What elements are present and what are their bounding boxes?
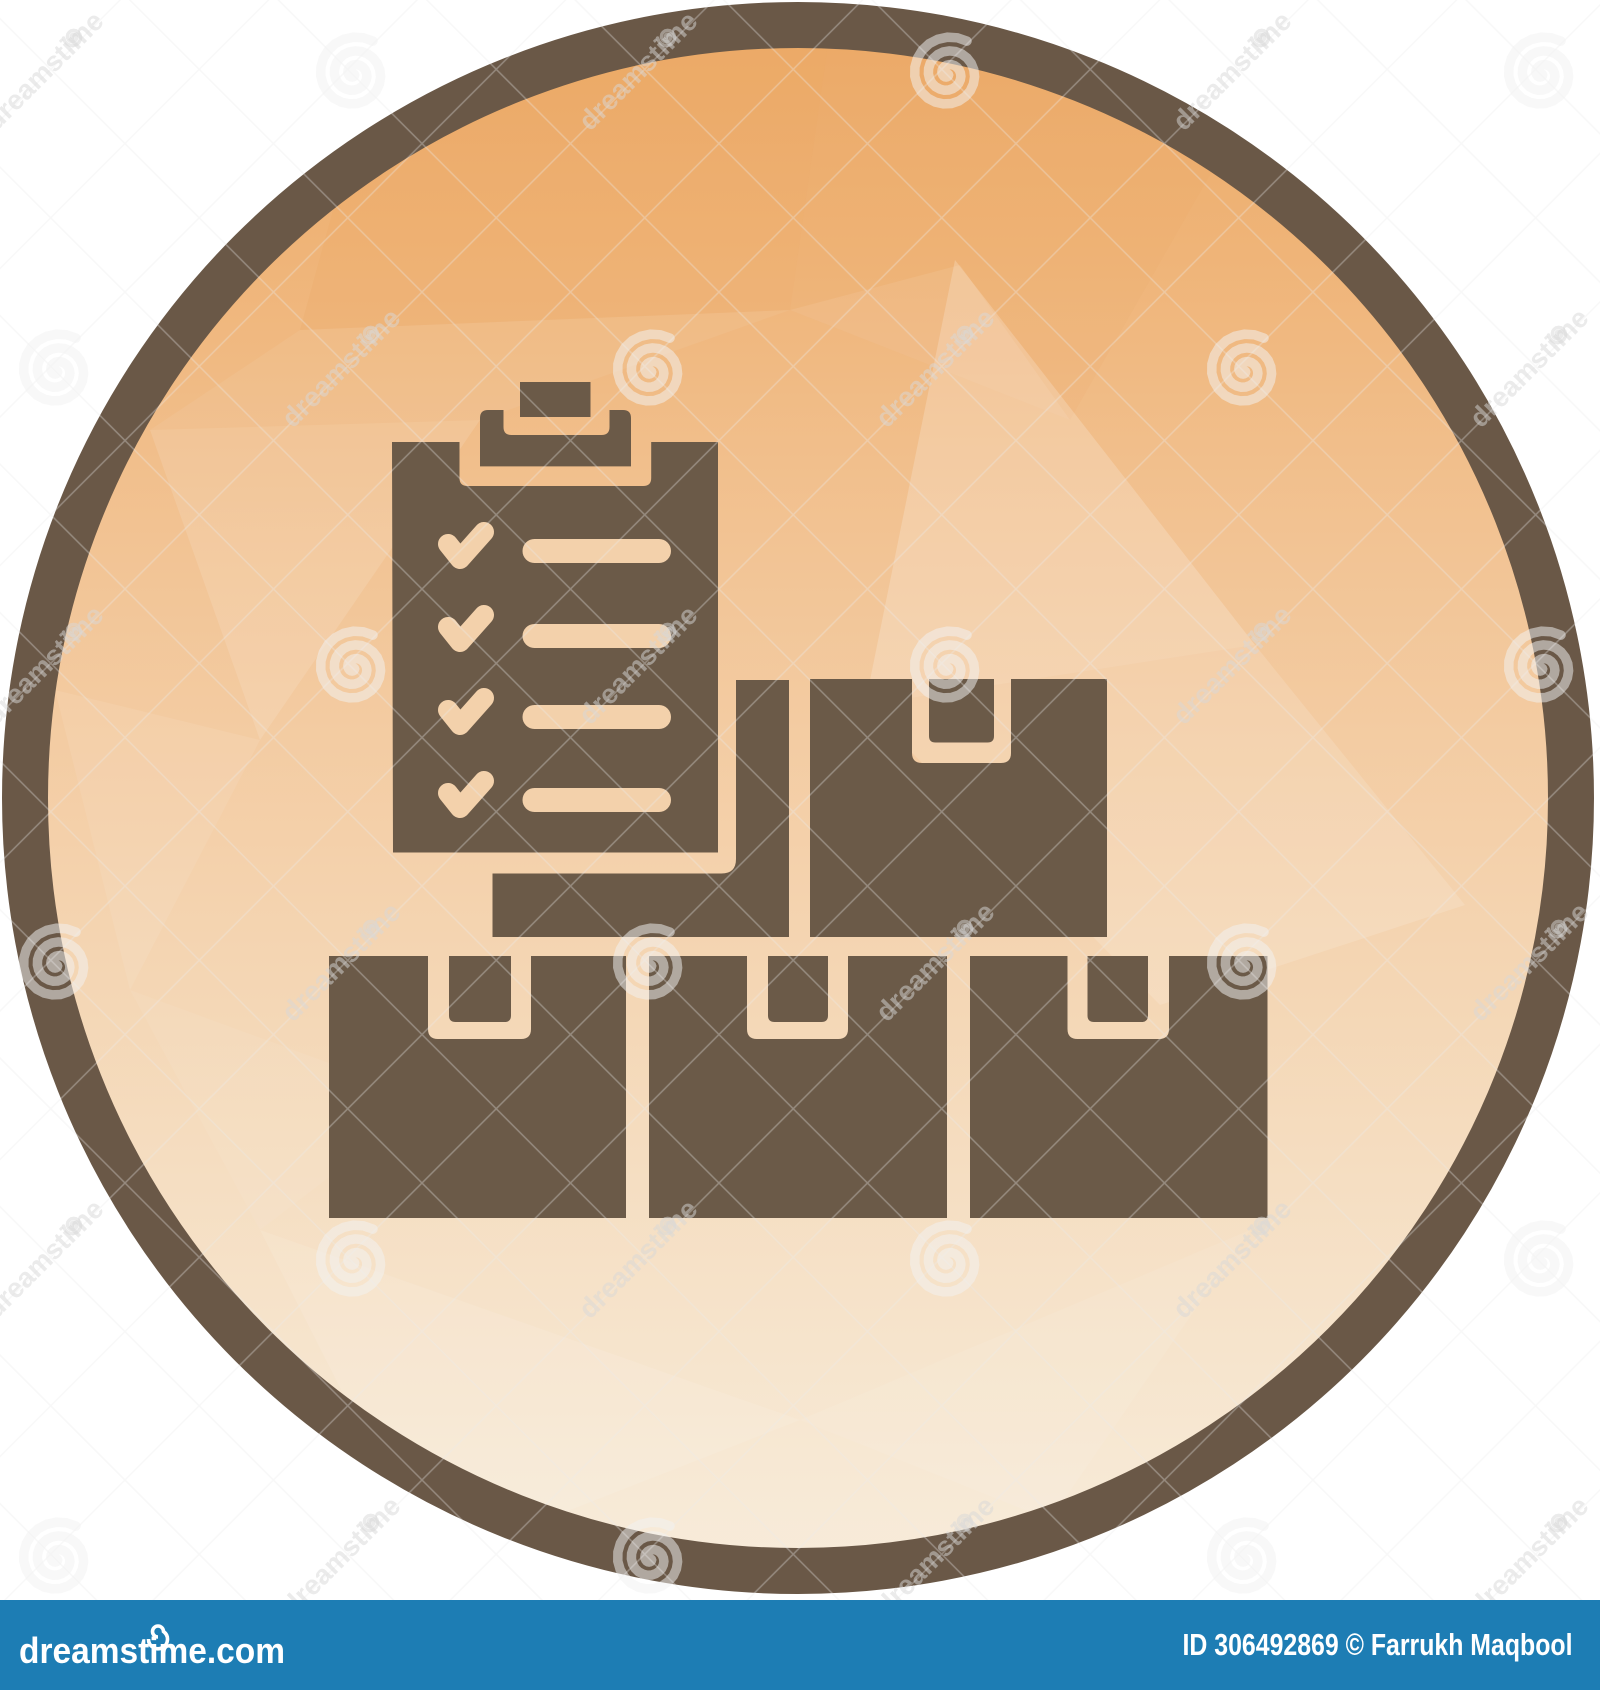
svg-text:ID 306492869 © Farrukh Maqbool: ID 306492869 © Farrukh Maqbool	[1183, 1627, 1573, 1662]
svg-text:dreamstime.com: dreamstime.com	[19, 1630, 285, 1671]
